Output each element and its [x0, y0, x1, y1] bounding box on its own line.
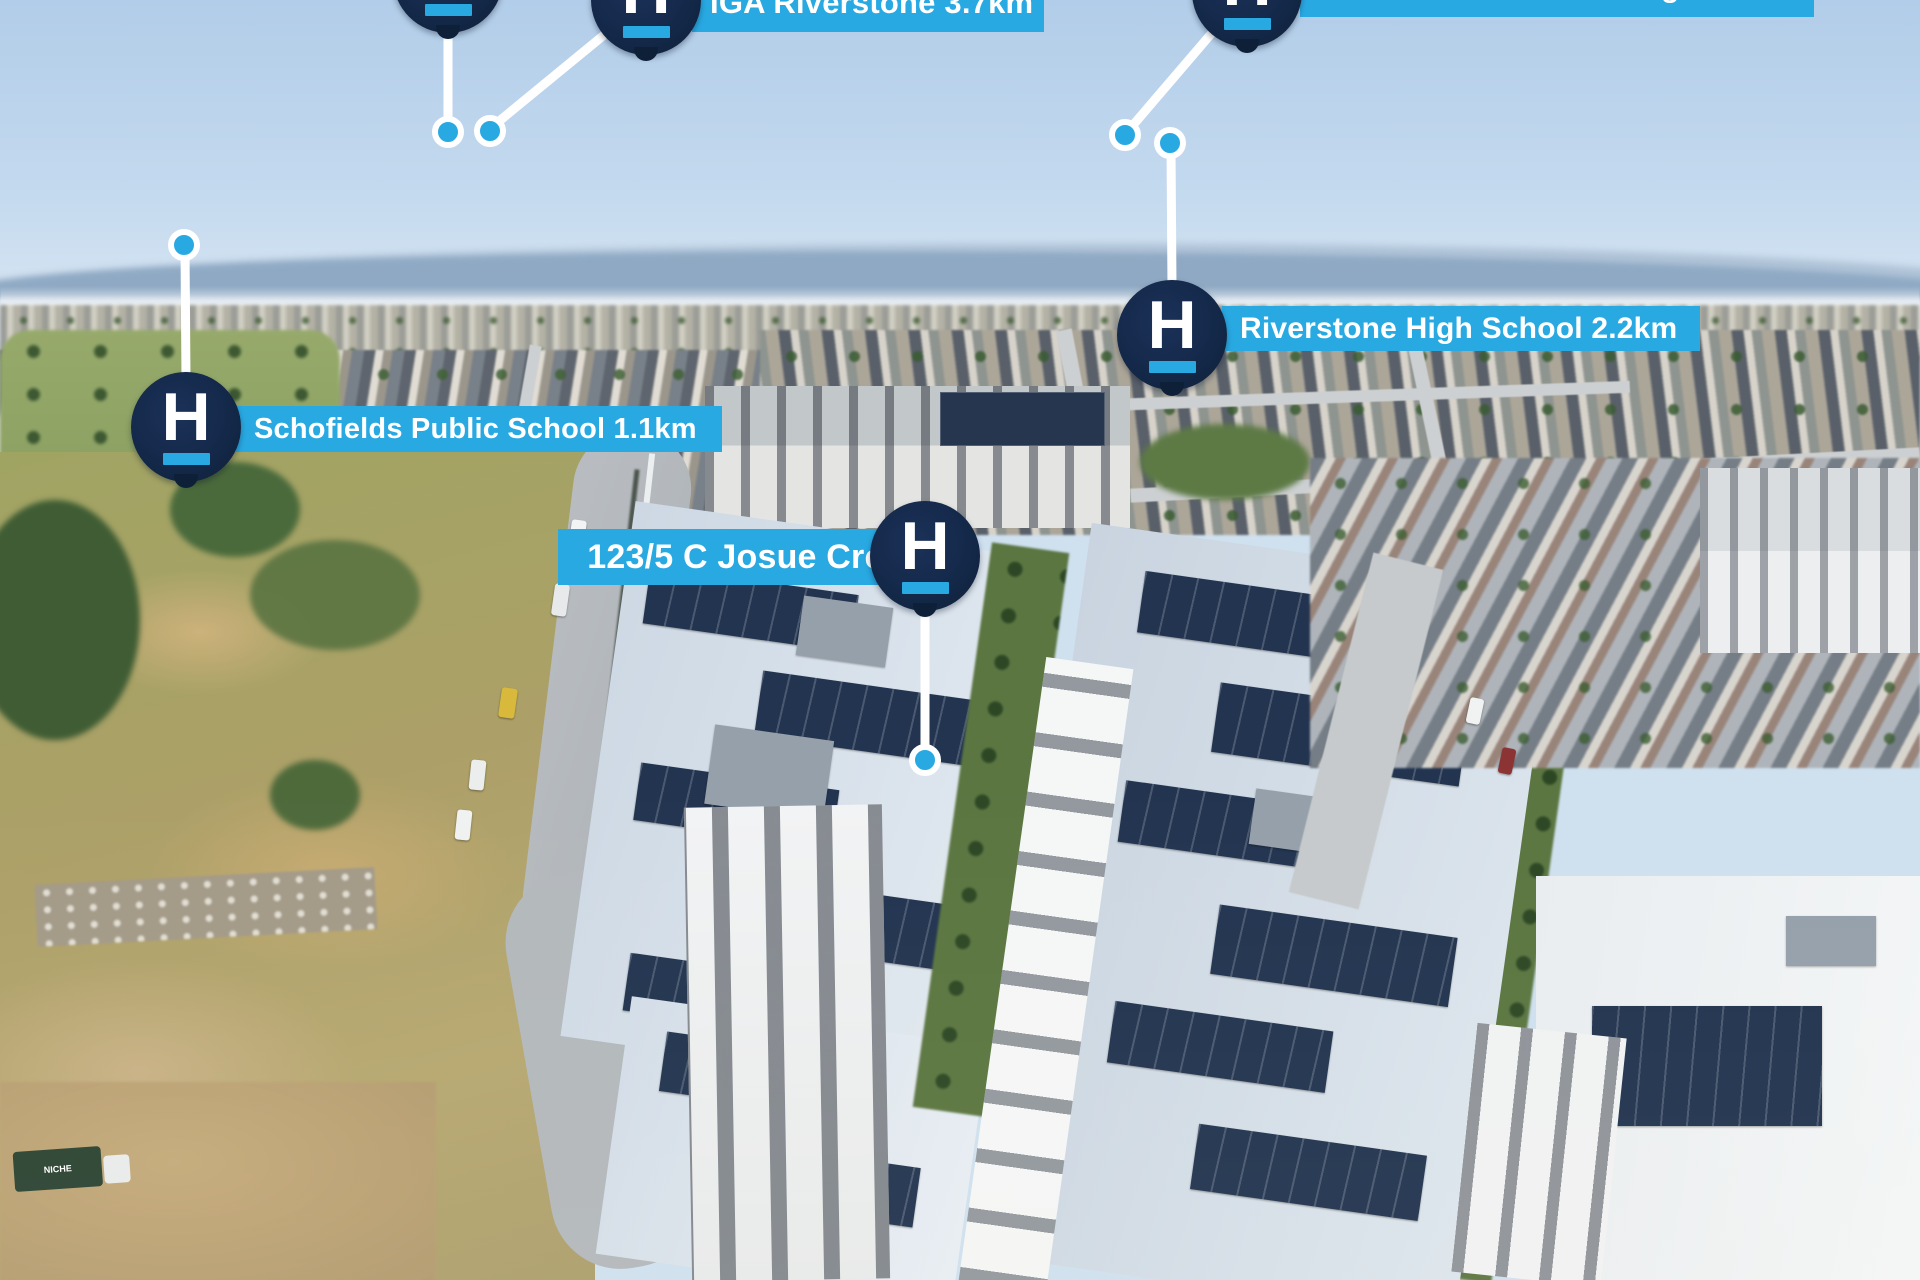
connector-lines-layer [0, 0, 1920, 1280]
location-dot-iga [477, 118, 503, 144]
location-dot-top-partial [435, 119, 461, 145]
marker-norwest: H [1192, 0, 1302, 47]
connector-lines [185, 28, 1211, 754]
brand-underline [902, 582, 949, 594]
location-dot-riverstone [1157, 130, 1183, 156]
aerial-photo-canvas: NICHE IGA Riverstone 3.7km Norwes [0, 0, 1920, 1280]
label-riverstone-high-school: Riverstone High School 2.2km [1222, 306, 1700, 351]
marker-property: H [870, 501, 980, 611]
brand-h-logo: H [1147, 297, 1196, 355]
marker-circle: H [591, 0, 701, 55]
brand-underline [1149, 361, 1196, 373]
label-iga-riverstone-text: IGA Riverstone 3.7km [710, 0, 1033, 21]
brand-h-logo: H [161, 389, 210, 447]
brand-underline [425, 4, 472, 16]
brand-underline [623, 26, 670, 38]
brand-underline [1224, 18, 1271, 30]
marker-riverstone-high: H [1117, 280, 1227, 390]
brand-h-logo: H [621, 0, 670, 19]
marker-circle: H [1192, 0, 1302, 47]
marker-schofields: H [131, 372, 241, 482]
connector-line-iga [492, 35, 604, 127]
marker-circle: H [131, 372, 241, 482]
label-norwest-text: Norwest Christian College 2.6km [1318, 0, 1791, 5]
label-norwest-christian-college: Norwest Christian College 2.6km [1300, 0, 1814, 17]
marker-top-partial: H [393, 0, 503, 33]
label-property-text: 123/5 C Josue Cres [587, 538, 902, 577]
location-dot-norwest [1112, 122, 1138, 148]
location-dot-property [912, 747, 938, 773]
label-schofields-text: Schofields Public School 1.1km [254, 413, 697, 446]
marker-iga: H [591, 0, 701, 55]
label-schofields-public-school: Schofields Public School 1.1km [236, 406, 722, 452]
brand-underline [163, 453, 210, 465]
location-dot-schofields [171, 232, 197, 258]
connector-line-schofields [185, 249, 186, 380]
label-iga-riverstone: IGA Riverstone 3.7km [692, 0, 1044, 32]
marker-circle: H [393, 0, 503, 33]
marker-circle: H [1117, 280, 1227, 390]
connector-line-riverstone [1171, 147, 1172, 288]
brand-h-logo: H [900, 518, 949, 576]
connector-line-norwest [1128, 34, 1211, 131]
marker-circle: H [870, 501, 980, 611]
brand-h-logo: H [1222, 0, 1271, 11]
label-riverstone-text: Riverstone High School 2.2km [1240, 312, 1677, 346]
